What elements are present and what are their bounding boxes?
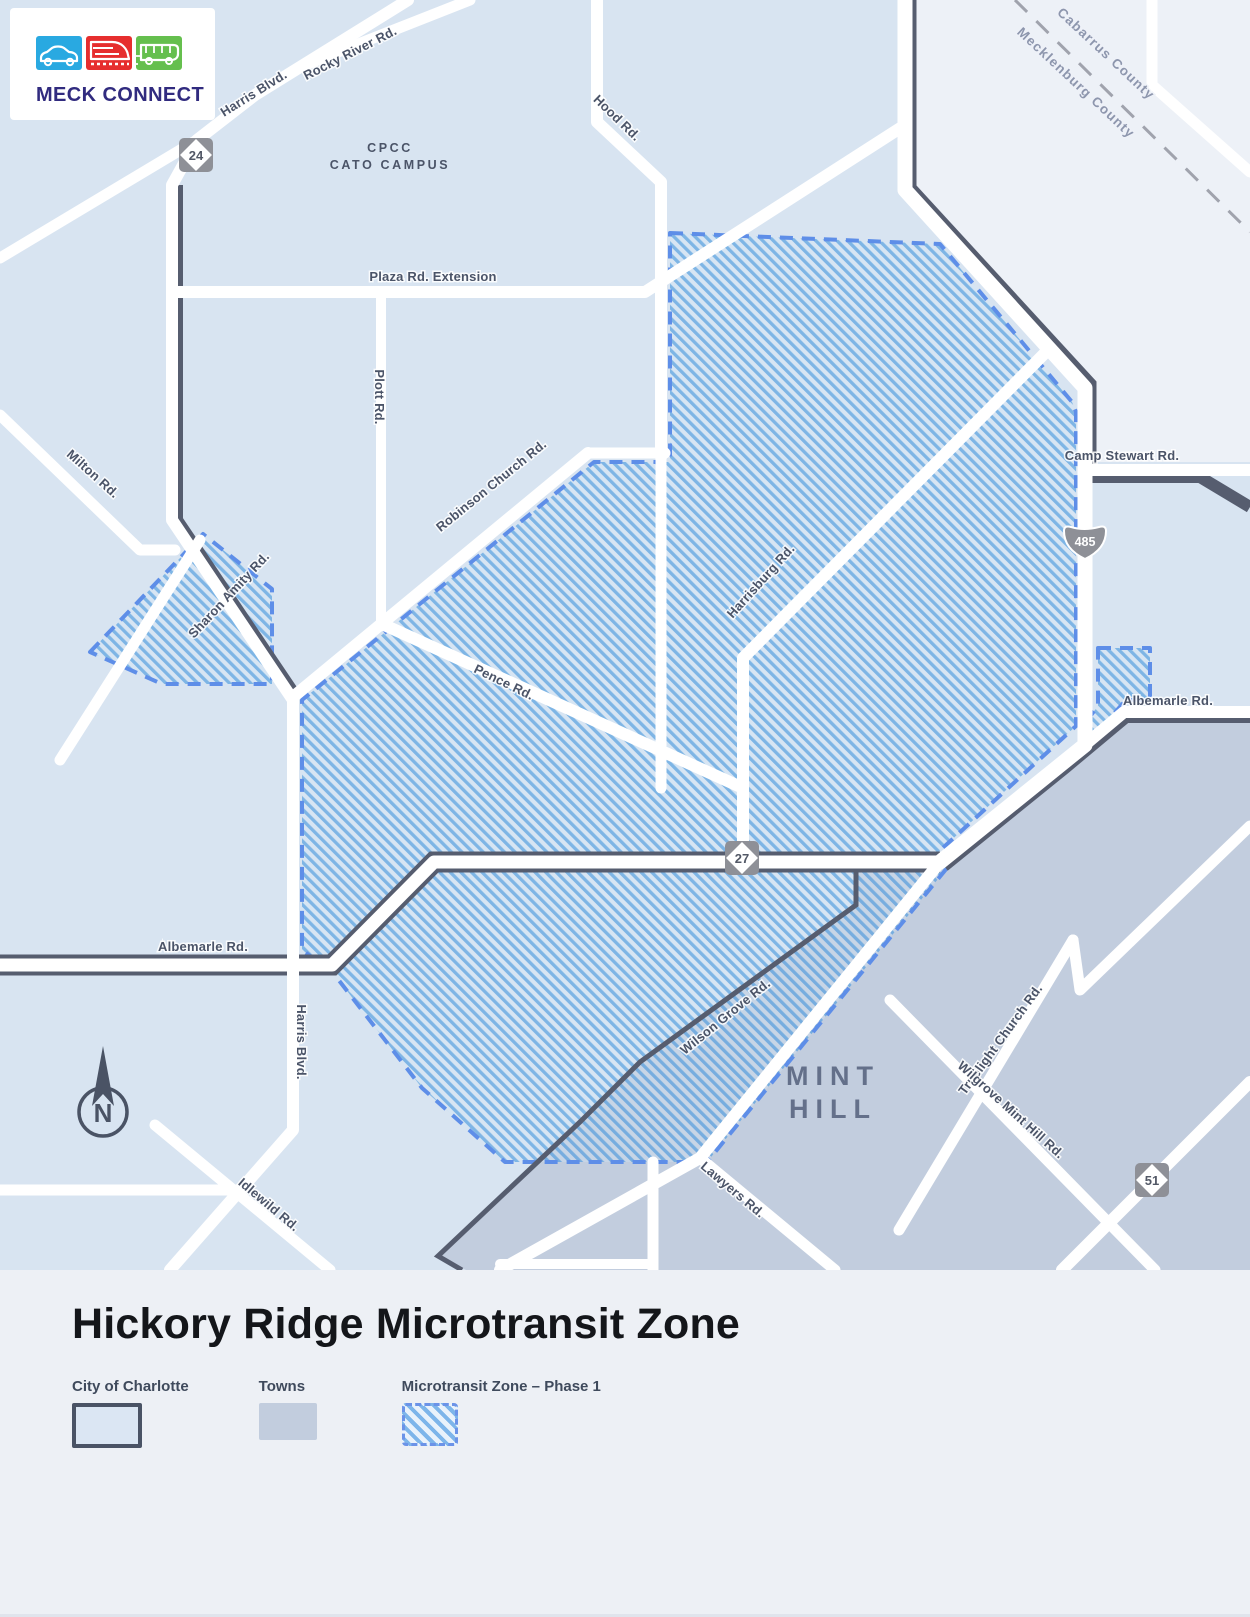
shield-nc24-number: 24: [189, 148, 204, 163]
road-label-albemarle-east: Albemarle Rd.: [1123, 693, 1213, 708]
shield-nc51: 51: [1135, 1163, 1169, 1197]
legend-item-city: City of Charlotte: [72, 1378, 189, 1448]
shield-nc27: 27: [725, 841, 759, 875]
bus-icon: [136, 36, 182, 70]
campus-label-line2: CATO CAMPUS: [330, 158, 451, 172]
train-icon: [86, 36, 132, 70]
town-label-mint: MINT: [786, 1061, 880, 1091]
road-label-albemarle-west: Albemarle Rd.: [158, 939, 248, 954]
legend-label-city: City of Charlotte: [72, 1378, 189, 1395]
legend-item-towns: Towns: [259, 1378, 317, 1440]
legend-swatch-towns: [259, 1403, 317, 1440]
north-arrow-letter: N: [94, 1098, 113, 1128]
road-label-plaza-extension: Plaza Rd. Extension: [369, 269, 496, 284]
meck-connect-logo: MECK CONNECT: [10, 8, 215, 120]
logo-wordmark: MECK CONNECT: [36, 84, 204, 106]
legend-item-zone: Microtransit Zone – Phase 1: [402, 1378, 601, 1446]
map: 24 27 51 485 Harris Blvd. Rocky River Rd…: [0, 0, 1250, 1270]
campus-label-line1: CPCC: [367, 141, 413, 155]
footer-panel: Hickory Ridge Microtransit Zone City of …: [0, 1270, 1250, 1617]
legend-swatch-city: [72, 1403, 142, 1448]
road-label-plott: Plott Rd.: [372, 369, 387, 424]
car-icon: [36, 36, 82, 70]
legend: City of Charlotte Towns Microtransit Zon…: [72, 1378, 601, 1448]
legend-label-zone: Microtransit Zone – Phase 1: [402, 1378, 601, 1395]
page-title: Hickory Ridge Microtransit Zone: [72, 1300, 740, 1349]
shield-nc24: 24: [179, 138, 213, 172]
shield-i485-number: 485: [1075, 535, 1096, 549]
legend-label-towns: Towns: [259, 1378, 317, 1395]
road-label-harris-blvd-south: Harris Blvd.: [294, 1004, 309, 1079]
town-label-hill: HILL: [789, 1094, 877, 1124]
shield-nc27-number: 27: [735, 851, 749, 866]
shield-nc51-number: 51: [1145, 1173, 1159, 1188]
legend-swatch-zone: [402, 1403, 458, 1446]
road-label-camp-stewart: Camp Stewart Rd.: [1065, 448, 1179, 463]
